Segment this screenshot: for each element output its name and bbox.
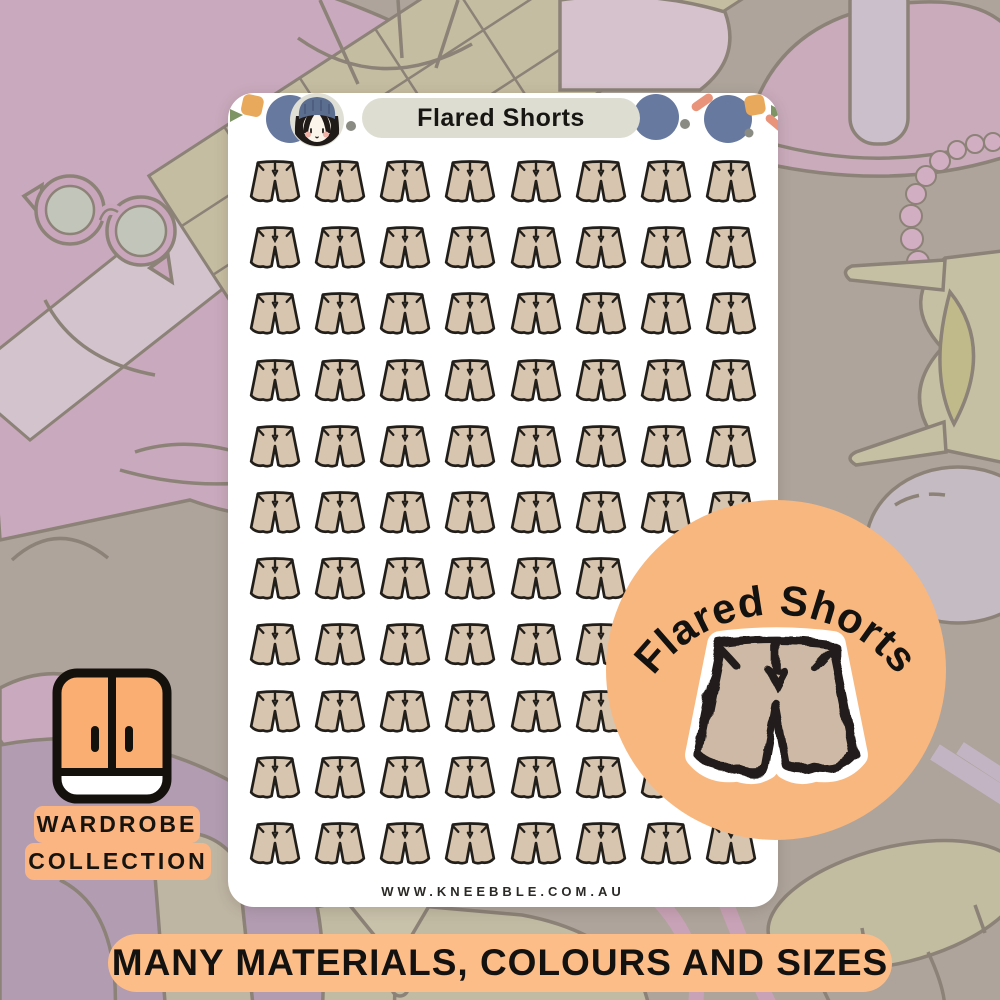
banner-text: MANY MATERIALS, COLOURS AND SIZES <box>112 942 888 984</box>
flared-shorts-sticker <box>509 554 563 604</box>
flared-shorts-sticker <box>574 289 628 339</box>
flared-shorts-sticker <box>248 620 302 670</box>
flared-shorts-sticker <box>313 157 367 207</box>
flared-shorts-sticker <box>509 620 563 670</box>
flared-shorts-sticker <box>639 289 693 339</box>
flared-shorts-sticker <box>574 157 628 207</box>
flared-shorts-sticker <box>443 289 497 339</box>
flared-shorts-sticker <box>443 488 497 538</box>
flared-shorts-sticker <box>313 356 367 406</box>
flared-shorts-sticker <box>313 289 367 339</box>
flared-shorts-sticker <box>248 223 302 273</box>
sheet-title: Flared Shorts <box>417 104 585 133</box>
flared-shorts-sticker <box>574 422 628 472</box>
flared-shorts-sticker <box>509 422 563 472</box>
flared-shorts-sticker <box>443 687 497 737</box>
flared-shorts-sticker <box>378 620 432 670</box>
flared-shorts-sticker <box>248 753 302 803</box>
flared-shorts-sticker <box>443 356 497 406</box>
flared-shorts-sticker <box>509 157 563 207</box>
flared-shorts-sticker <box>574 356 628 406</box>
flared-shorts-sticker <box>313 554 367 604</box>
flared-shorts-sticker <box>378 157 432 207</box>
flared-shorts-sticker <box>443 753 497 803</box>
flared-shorts-sticker <box>378 687 432 737</box>
flared-shorts-sticker <box>443 554 497 604</box>
flared-shorts-sticker <box>378 488 432 538</box>
flared-shorts-sticker <box>248 289 302 339</box>
flared-shorts-sticker <box>509 819 563 869</box>
flared-shorts-sticker <box>443 157 497 207</box>
flared-shorts-sticker <box>248 422 302 472</box>
flared-shorts-sticker <box>378 356 432 406</box>
flared-shorts-sticker <box>574 223 628 273</box>
flared-shorts-sticker <box>704 289 758 339</box>
flared-shorts-sticker <box>443 422 497 472</box>
flared-shorts-sticker <box>509 289 563 339</box>
flared-shorts-sticker <box>313 753 367 803</box>
flared-shorts-sticker <box>248 554 302 604</box>
flared-shorts-sticker <box>248 356 302 406</box>
sheet-title-pill: Flared Shorts <box>362 98 640 138</box>
flared-shorts-sticker <box>378 554 432 604</box>
flared-shorts-sticker <box>639 223 693 273</box>
flared-shorts-sticker <box>378 289 432 339</box>
banner: MANY MATERIALS, COLOURS AND SIZES <box>108 934 892 992</box>
flared-shorts-sticker <box>378 223 432 273</box>
flared-shorts-sticker <box>704 223 758 273</box>
flared-shorts-sticker <box>248 488 302 538</box>
collection-tag-line2: COLLECTION <box>25 843 211 880</box>
collection-tag-text: WARDROBE <box>37 811 198 838</box>
website-text: WWW.KNEEBBLE.COM.AU <box>228 884 778 899</box>
green-triangle-icon <box>230 109 243 122</box>
flared-shorts-sticker <box>704 422 758 472</box>
flared-shorts-sticker <box>443 620 497 670</box>
wardrobe-cabinet-icon <box>52 668 172 804</box>
flared-shorts-sticker <box>443 223 497 273</box>
flared-shorts-sticker <box>704 157 758 207</box>
flared-shorts-sticker <box>378 753 432 803</box>
product-image: Flared Shorts WWW.KNEEBBLE.COM.AU Flared… <box>0 0 1000 1000</box>
flared-shorts-sticker <box>704 356 758 406</box>
flared-shorts-sticker <box>378 422 432 472</box>
flared-shorts-sticker <box>639 356 693 406</box>
flared-shorts-sticker <box>313 687 367 737</box>
flared-shorts-sticker <box>248 819 302 869</box>
collection-tag-line1: WARDROBE <box>34 806 200 843</box>
flared-shorts-sticker <box>378 819 432 869</box>
flared-shorts-sticker <box>509 356 563 406</box>
gray-dot-icon <box>346 121 356 131</box>
flared-shorts-sticker <box>509 488 563 538</box>
flared-shorts-sticker <box>639 157 693 207</box>
flared-shorts-sticker <box>443 819 497 869</box>
flared-shorts-sticker <box>509 753 563 803</box>
product-badge: Flared Shorts <box>606 500 946 840</box>
flared-shorts-sticker <box>248 687 302 737</box>
gray-dot-icon <box>680 119 690 129</box>
flared-shorts-sticker <box>313 620 367 670</box>
flared-shorts-sticker <box>248 157 302 207</box>
collection-tag-text: COLLECTION <box>28 848 208 875</box>
orange-square-icon <box>743 93 766 116</box>
flared-shorts-sticker <box>313 223 367 273</box>
flared-shorts-sticker <box>313 819 367 869</box>
flared-shorts-sticker <box>509 687 563 737</box>
flared-shorts-sticker <box>509 223 563 273</box>
flared-shorts-sticker <box>639 422 693 472</box>
flared-shorts-sticker <box>313 488 367 538</box>
orange-square-icon <box>240 93 265 118</box>
gray-dot-icon <box>745 129 754 138</box>
flared-shorts-sticker <box>313 422 367 472</box>
